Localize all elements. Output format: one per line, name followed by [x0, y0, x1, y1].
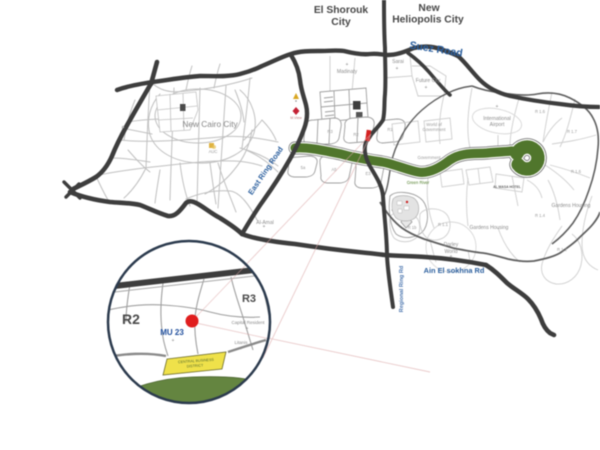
svg-text:New Cairo City: New Cairo City: [182, 119, 238, 129]
svg-text:Government: Government: [422, 127, 446, 132]
svg-text:+: +: [450, 254, 453, 260]
svg-text:R 1.6: R 1.6: [571, 169, 582, 174]
svg-text:E3: E3: [365, 171, 371, 176]
svg-text:Gardens Housing: Gardens Housing: [470, 225, 509, 231]
svg-text:+: +: [396, 66, 399, 72]
svg-text:AL MASA HOTEL: AL MASA HOTEL: [493, 185, 521, 189]
svg-text:Ain El sokhna Rd: Ain El sokhna Rd: [424, 266, 485, 275]
svg-text:M.View: M.View: [290, 116, 302, 120]
svg-text:R 1.1: R 1.1: [438, 222, 449, 227]
svg-text:MU 23: MU 23: [160, 328, 184, 337]
svg-text:+: +: [346, 62, 349, 68]
svg-text:R 1.4: R 1.4: [535, 213, 546, 218]
svg-text:R1: R1: [387, 127, 393, 132]
svg-text:Government: Government: [417, 155, 441, 160]
svg-text:New: New: [418, 3, 440, 14]
svg-text:A5: A5: [331, 167, 337, 172]
svg-text:5a: 5a: [301, 165, 306, 170]
svg-text:+: +: [240, 346, 243, 352]
svg-text:Madinaty: Madinaty: [337, 69, 358, 75]
svg-text:+: +: [172, 338, 175, 344]
svg-text:Heliopolis City: Heliopolis City: [392, 15, 464, 26]
svg-text:+: +: [246, 326, 249, 332]
svg-text:Airport: Airport: [490, 122, 505, 128]
svg-text:City: City: [331, 17, 351, 28]
svg-text:+: +: [263, 224, 266, 230]
svg-text:R 1.6: R 1.6: [535, 109, 546, 114]
svg-text:Green River: Green River: [407, 180, 430, 185]
svg-text:R2: R2: [122, 311, 140, 327]
svg-text:R 1.2: R 1.2: [557, 247, 568, 252]
svg-text:Regional Ring Rd: Regional Ring Rd: [399, 265, 405, 312]
svg-text:Capital Resident: Capital Resident: [231, 320, 265, 325]
svg-text:El Shorouk: El Shorouk: [314, 5, 369, 16]
svg-text:Gardens Housing: Gardens Housing: [552, 203, 591, 209]
svg-text:Future City: Future City: [416, 78, 441, 84]
svg-text:Litanis: Litanis: [234, 340, 248, 345]
svg-text:Darley: Darley: [444, 242, 459, 248]
svg-text:R 1b: R 1b: [408, 225, 418, 230]
svg-text:R3: R3: [242, 293, 256, 305]
svg-text:Sarai: Sarai: [392, 59, 404, 65]
svg-text:AUC: AUC: [209, 149, 218, 154]
svg-text:+: +: [425, 85, 428, 91]
svg-text:+: +: [496, 104, 499, 110]
svg-text:R3: R3: [327, 129, 333, 134]
svg-text:R 1.7: R 1.7: [567, 129, 578, 134]
svg-text:R2: R2: [353, 132, 359, 137]
